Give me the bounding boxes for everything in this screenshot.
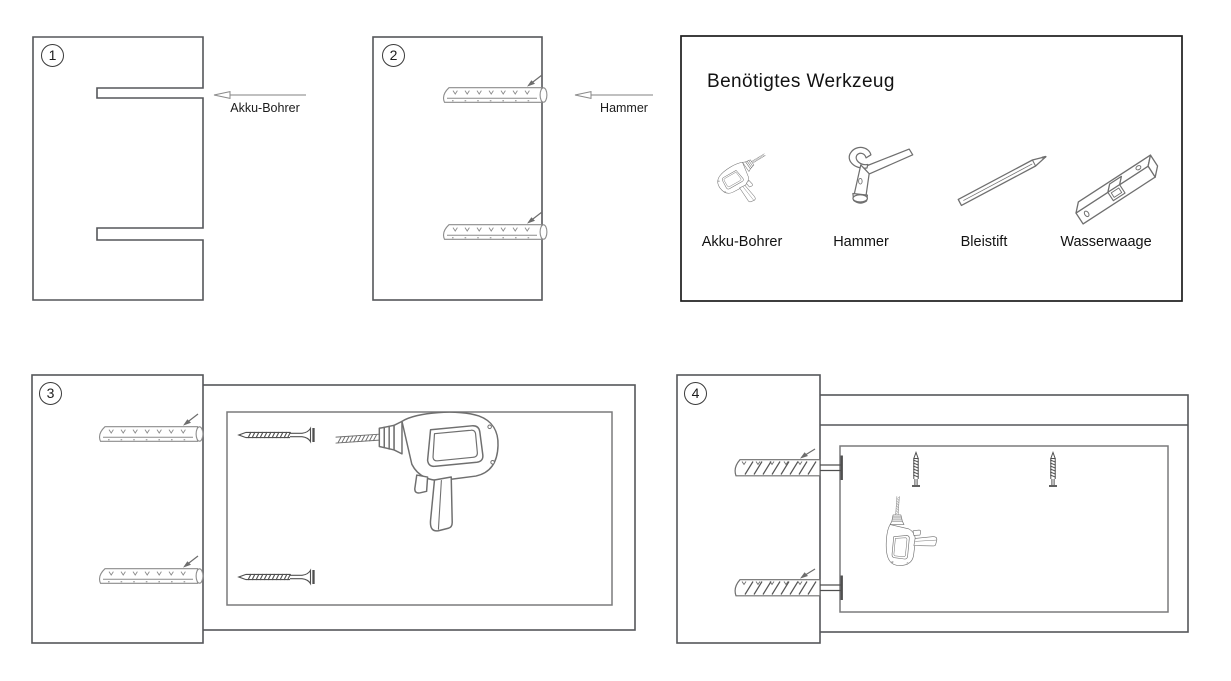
- step-1-badge: 1: [41, 44, 64, 67]
- assembly-instruction-sheet: 1 2 3 4 Akku-Bohrer Hammer Benötigtes We…: [0, 0, 1231, 681]
- tool-label-akku-bohrer: Akku-Bohrer: [702, 234, 783, 250]
- step-1-figure: [33, 37, 306, 300]
- tool-label-hammer: Hammer: [833, 234, 889, 250]
- wall-panel: [32, 375, 203, 643]
- step-1-arrow-label: Akku-Bohrer: [230, 101, 299, 115]
- tools-panel-title: Benötigtes Werkzeug: [707, 71, 895, 93]
- wall-panel: [677, 375, 820, 643]
- step-2-figure: [373, 37, 653, 300]
- step-3-figure: [32, 375, 635, 643]
- step-2-badge: 2: [382, 44, 405, 67]
- wall-panel: [373, 37, 542, 300]
- step-4-badge: 4: [684, 382, 707, 405]
- step-2-arrow-label: Hammer: [600, 101, 648, 115]
- step-3-badge: 3: [39, 382, 62, 405]
- arrow-left-icon: [575, 92, 653, 99]
- tool-label-bleistift: Bleistift: [961, 234, 1008, 250]
- step-4-figure: [677, 375, 1188, 643]
- tool-label-wasserwaage: Wasserwaage: [1060, 234, 1151, 250]
- wall-panel-with-drilled-holes: [33, 37, 203, 300]
- arrow-left-icon: [214, 92, 306, 99]
